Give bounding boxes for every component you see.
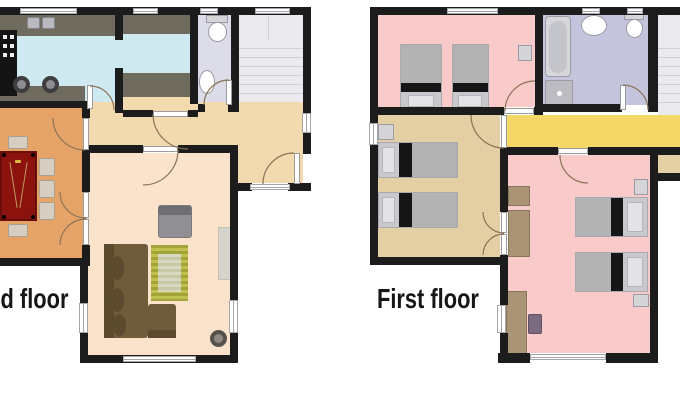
wall	[80, 333, 88, 355]
wall	[178, 145, 238, 153]
chair-icon	[8, 136, 28, 149]
desk	[506, 291, 527, 354]
window	[582, 8, 600, 14]
washing-machine-icon	[545, 80, 573, 106]
washbasin-icon	[581, 15, 607, 36]
corner-sofa	[148, 304, 176, 338]
window	[302, 113, 311, 133]
single-bed	[378, 192, 458, 228]
ground-floor-label: Ground floor	[0, 283, 68, 315]
door	[87, 85, 93, 109]
single-bed	[378, 142, 458, 178]
wall	[228, 104, 239, 112]
wall	[588, 147, 658, 155]
wall	[303, 133, 311, 154]
door	[143, 146, 178, 152]
wall	[82, 108, 90, 118]
kitchen-counter	[123, 73, 190, 97]
kitchen-counter	[123, 15, 190, 34]
window	[229, 300, 238, 333]
door	[153, 111, 188, 117]
wall	[230, 153, 238, 300]
wall	[498, 353, 530, 363]
hallway-floor	[502, 115, 680, 148]
wall	[0, 258, 90, 266]
window	[20, 8, 77, 14]
wardrobe	[508, 186, 530, 206]
single-bed	[452, 44, 489, 110]
wall	[80, 266, 88, 303]
toilet-icon	[626, 19, 643, 38]
wall	[658, 173, 680, 181]
single-bed	[575, 252, 648, 292]
nightstand	[378, 124, 394, 140]
kitchen-counter	[0, 15, 118, 36]
window	[497, 305, 506, 333]
wall	[370, 257, 508, 265]
window	[250, 184, 290, 190]
wall	[190, 7, 198, 104]
door	[620, 85, 626, 110]
wall	[188, 110, 198, 117]
window	[79, 303, 88, 333]
single-bed	[400, 44, 442, 110]
window	[369, 123, 378, 145]
desk-chair-icon	[528, 314, 542, 334]
window	[133, 8, 158, 14]
wall	[288, 183, 311, 191]
wall	[198, 104, 205, 112]
balcony-floor	[658, 155, 680, 173]
wall	[231, 7, 239, 104]
wall	[648, 7, 658, 112]
bar-stool-icon	[42, 76, 59, 93]
door	[83, 219, 89, 245]
stair-landing-line	[268, 15, 269, 40]
entrance-door	[294, 153, 300, 184]
bar-stool-icon	[13, 76, 30, 93]
wall	[87, 145, 143, 153]
wall	[115, 15, 123, 40]
stair-steps	[658, 40, 680, 103]
window	[123, 356, 196, 362]
wall	[370, 7, 378, 123]
wall	[606, 353, 658, 363]
nightstand	[518, 45, 532, 61]
chair-icon	[39, 158, 55, 176]
door	[501, 115, 507, 148]
wall	[123, 110, 153, 117]
door	[504, 108, 534, 114]
window	[530, 354, 606, 360]
armchair-icon	[158, 205, 192, 238]
wall	[500, 148, 508, 212]
door	[501, 234, 507, 255]
wardrobe	[508, 210, 530, 257]
wall	[0, 101, 88, 108]
toilet-icon	[208, 22, 227, 42]
window	[447, 8, 498, 14]
kitchen-sink-icon	[42, 17, 55, 29]
nightstand	[633, 294, 649, 307]
wall	[658, 147, 680, 155]
wall	[370, 145, 378, 265]
wall	[650, 155, 658, 363]
wall	[303, 7, 311, 113]
door	[226, 80, 232, 105]
window	[255, 8, 290, 14]
single-bed	[575, 197, 648, 237]
wall	[534, 107, 543, 115]
bedroom2-floor	[378, 115, 500, 257]
dining-table	[0, 151, 37, 221]
door	[501, 212, 507, 233]
rug-inner	[158, 254, 181, 292]
door	[83, 192, 89, 218]
floor-plan: Ground floor First floor	[0, 0, 680, 408]
wall	[230, 333, 238, 363]
wall	[377, 107, 504, 115]
door	[83, 118, 89, 150]
wall	[82, 245, 90, 258]
chair-icon	[39, 180, 55, 198]
chair-icon	[39, 202, 55, 220]
nightstand	[634, 179, 648, 195]
door	[558, 148, 588, 154]
wall	[82, 150, 90, 192]
first-floor-label: First floor	[377, 283, 479, 315]
stair-steps	[239, 40, 303, 103]
wall	[502, 147, 558, 155]
wall	[543, 104, 622, 112]
window	[627, 8, 643, 14]
chair-icon	[8, 224, 28, 237]
window	[200, 8, 218, 14]
kitchen-sink-icon	[27, 17, 40, 29]
pouf-icon	[210, 330, 227, 347]
bathtub-icon	[545, 16, 571, 77]
wall	[115, 68, 123, 113]
corner-sofa	[104, 244, 148, 338]
washbasin-icon	[199, 70, 215, 94]
wall	[535, 7, 543, 115]
